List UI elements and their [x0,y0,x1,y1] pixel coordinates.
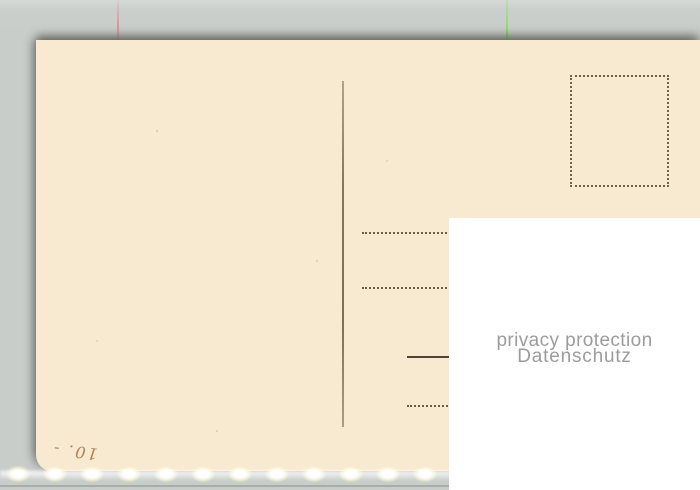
scanner-light-glow [0,450,458,490]
address-line-2 [362,287,454,289]
postcard-divider-line [342,81,344,427]
bottom-scan-band [0,471,455,479]
address-line-1 [362,232,454,234]
green-scan-line-artifact [506,0,508,44]
bottom-edge-shadow [0,485,452,487]
privacy-text-german: Datenschutz [449,349,700,364]
privacy-protection-overlay: privacy protection Datenschutz [449,218,700,490]
stamp-box [570,75,669,187]
red-scan-line-artifact [117,0,119,40]
scanned-postcard-background: 10. - privacy protection Datenschutz [0,0,700,490]
